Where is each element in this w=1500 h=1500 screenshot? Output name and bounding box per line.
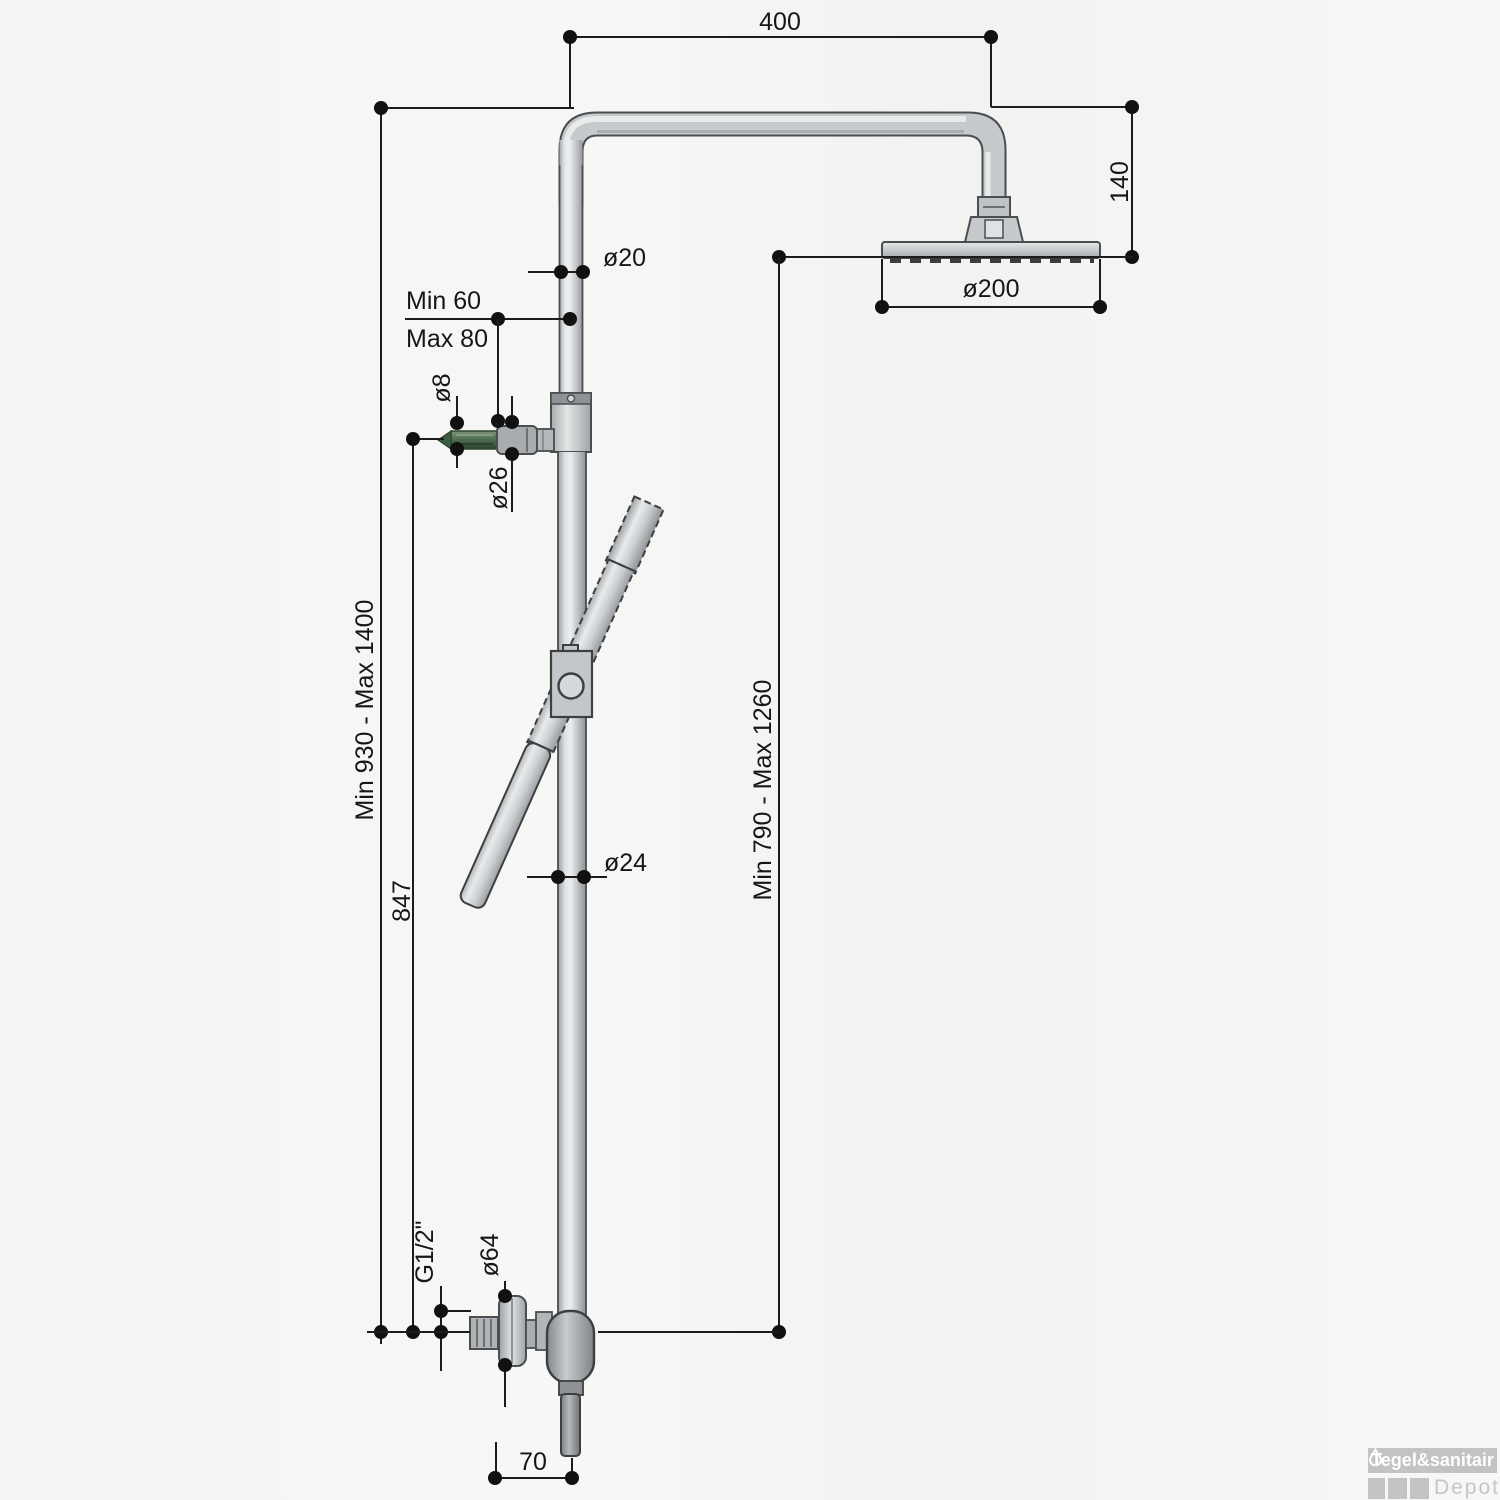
water-drop-icon <box>1368 1448 1383 1466</box>
dim-label-head-diameter: ø200 <box>963 275 1020 303</box>
dim-label-inlet-thread: G1/2" <box>411 1220 439 1283</box>
brand-subname: Depot <box>1434 1476 1500 1500</box>
hose-connector <box>559 1381 583 1395</box>
diverter-body <box>551 393 591 452</box>
shower-hose <box>561 1394 580 1456</box>
rain-shower-head <box>882 197 1100 261</box>
dim-label-hose-offset: 70 <box>519 1448 547 1476</box>
logo-square-3 <box>1410 1478 1429 1499</box>
shower-arm <box>560 113 1006 206</box>
hand-shower-holder <box>551 645 592 717</box>
dim-label-wall-bracket-max: Max 80 <box>406 325 488 353</box>
dim-label-riser-lower-diameter: ø24 <box>604 849 647 877</box>
dim-label-arm-width: 400 <box>759 8 801 36</box>
dim-label-wall-bracket-min: Min 60 <box>406 287 481 315</box>
brand-logo-row: Depot <box>1368 1476 1500 1500</box>
holder-knob <box>559 674 584 699</box>
logo-square-drop <box>1368 1478 1385 1499</box>
dim-label-collar-diameter: ø26 <box>485 466 513 509</box>
riser-pipe-lower <box>558 452 586 1320</box>
dim-label-head-drop: 140 <box>1106 161 1134 203</box>
logo-square-2 <box>1388 1478 1407 1499</box>
brand-logo: Tegel&sanitair Depot <box>1368 1448 1500 1500</box>
mixer-body <box>547 1311 594 1383</box>
technical-drawing-page: 400 140 ø20 Min 60 Max 80 ø8 ø26 ø200 Mi… <box>0 0 1500 1500</box>
dim-label-flange-diameter: ø64 <box>476 1233 504 1276</box>
dim-label-riser-upper-diameter: ø20 <box>603 244 646 272</box>
dim-label-head-height-range: Min 790 - Max 1260 <box>749 680 777 901</box>
dim-label-screw-diameter: ø8 <box>428 373 456 402</box>
dim-label-column-height-range: Min 930 - Max 1400 <box>351 600 379 821</box>
brand-name: Tegel&sanitair <box>1371 1450 1494 1471</box>
brand-logo-band: Tegel&sanitair <box>1368 1448 1497 1473</box>
shower-column-diagram: 400 140 ø20 Min 60 Max 80 ø8 ø26 ø200 Mi… <box>0 0 1500 1500</box>
bracket-nut <box>537 429 554 451</box>
mixer-valve <box>470 1296 594 1395</box>
dim-label-bracket-height: 847 <box>388 880 416 922</box>
